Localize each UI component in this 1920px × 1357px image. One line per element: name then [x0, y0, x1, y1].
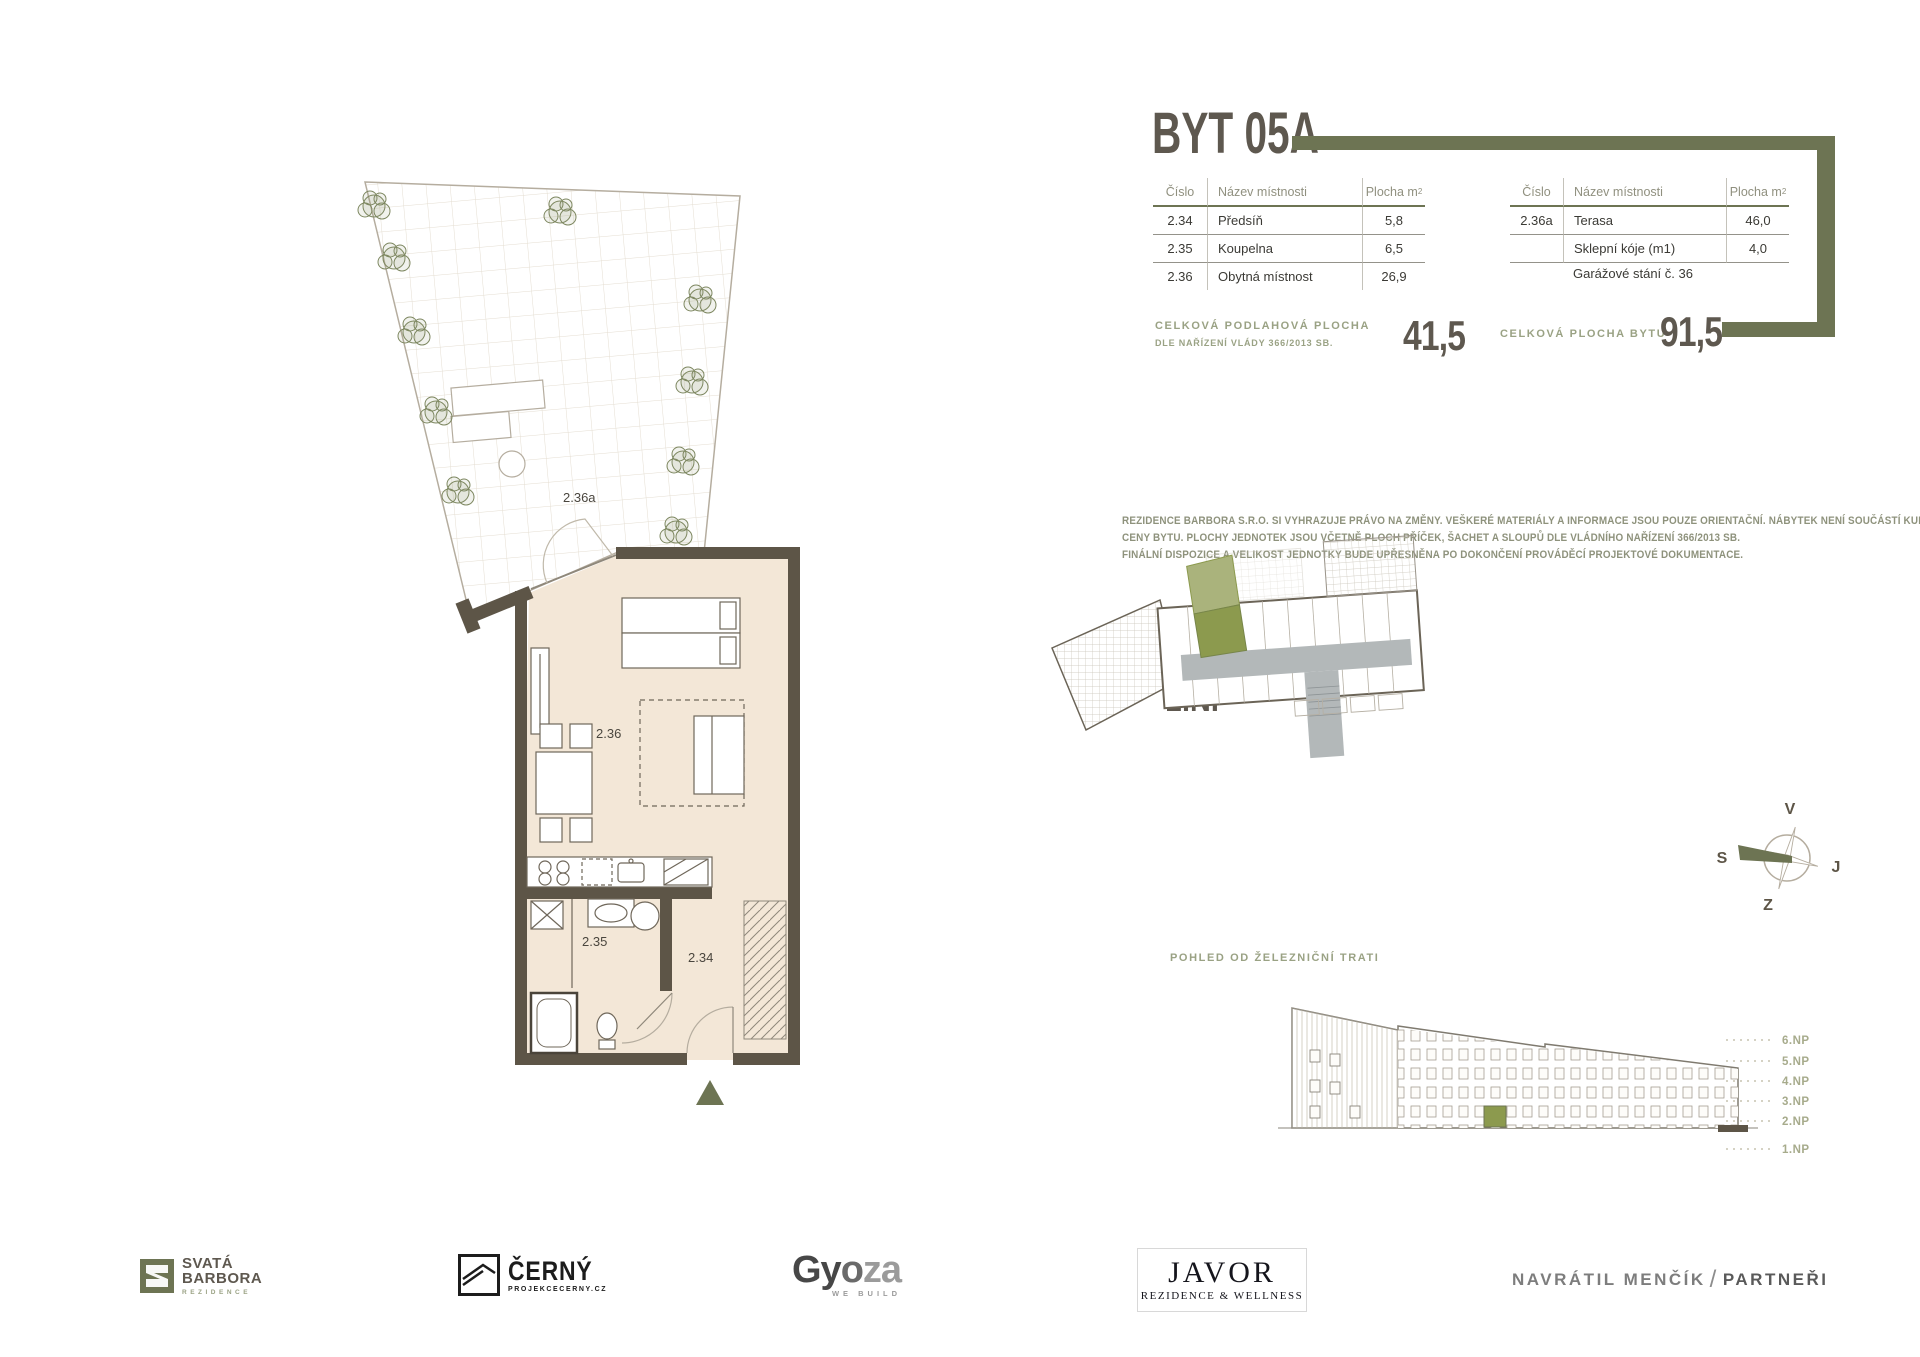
table-cell: Koupelna [1207, 235, 1363, 263]
entrance-arrow [696, 1080, 724, 1105]
room-label-living: 2.36 [596, 726, 621, 741]
navratil-slash: / [1706, 1266, 1723, 1293]
level-label-3np: 3.NP [1782, 1096, 1810, 1108]
svata-line1: SVATÁ [182, 1256, 262, 1271]
col-header-area: Plocha m2 [1363, 178, 1425, 207]
javor-name: JAVOR [1168, 1258, 1276, 1288]
window-grid [1398, 1028, 1738, 1128]
accent-bar-bottom [1722, 322, 1835, 337]
cerny-sub: PROJEKCECERNY.CZ [508, 1286, 608, 1293]
table-cell: 2.34 [1153, 207, 1207, 235]
cerny-name: ČERNÝ [508, 1258, 593, 1284]
area-unit-sup: 2 [1418, 187, 1422, 196]
table-cell: 2.35 [1153, 235, 1207, 263]
col-header-number: Číslo [1510, 178, 1563, 207]
total-floor-value: 41,5 [1403, 312, 1465, 360]
table-cell: Sklepní kóje (m1) [1563, 235, 1727, 263]
total-flat-label: CELKOVÁ PLOCHA BYTU [1500, 328, 1666, 340]
sofa [694, 716, 744, 794]
logo-gyoza: Gyoza WE BUILD [792, 1252, 901, 1298]
compass: S V J Z [1717, 801, 1841, 914]
table-cell: 6,5 [1363, 235, 1425, 263]
table-cell: 2.36a [1510, 207, 1563, 235]
total-floor-label: CELKOVÁ PODLAHOVÁ PLOCHA [1155, 320, 1370, 332]
compass-letter-z: Z [1763, 897, 1773, 914]
room-table-right: Číslo Název místnosti Plocha m2 2.36a Te… [1510, 178, 1789, 263]
svata-barbora-icon [140, 1259, 174, 1293]
area-unit-sup: 2 [1782, 187, 1786, 196]
total-flat-value: 91,5 [1660, 308, 1722, 356]
logo-svata-barbora: SVATÁ BARBORA REZIDENCE [140, 1256, 262, 1296]
dining-table [536, 752, 592, 814]
navratil-partner: PARTNEŘI [1723, 1270, 1829, 1289]
room-table-left: Číslo Název místnosti Plocha m2 2.34 Pře… [1153, 178, 1425, 290]
gyoza-o: o [841, 1249, 863, 1291]
room-label-bath: 2.35 [582, 934, 607, 949]
javor-sub: REZIDENCE & WELLNESS [1141, 1290, 1303, 1302]
col-header-name: Název místnosti [1563, 178, 1727, 207]
elevation-drawing: 6.NP 5.NP 4.NP 3.NP 2.NP 1.NP [1260, 985, 1860, 1175]
accent-bar-right [1817, 136, 1835, 337]
table-cell: 4,0 [1727, 235, 1789, 263]
gyoza-gy: Gy [792, 1249, 841, 1291]
table-cell: Terasa [1563, 207, 1727, 235]
kitchen-counter [527, 857, 712, 887]
table-cell: 5,8 [1363, 207, 1425, 235]
room-label-terrace: 2.36a [563, 490, 596, 505]
garage-note: Garážové stání č. 36 [1573, 266, 1693, 281]
level-label-4np: 4.NP [1782, 1076, 1810, 1088]
col-header-name: Název místnosti [1207, 178, 1363, 207]
col-header-number: Číslo [1153, 178, 1207, 207]
gyoza-name: Gyoza [792, 1252, 901, 1288]
cerny-icon [458, 1254, 500, 1296]
page-title: BYT 05A [1152, 100, 1319, 167]
table-cell: 26,9 [1363, 263, 1425, 290]
level-label-2np: 2.NP [1782, 1116, 1810, 1128]
unit-highlight-elevation [1484, 1106, 1506, 1127]
logo-cerny: ČERNÝ PROJEKCECERNY.CZ [458, 1254, 608, 1296]
logo-navratil: NAVRÁTIL MENČÍK/PARTNEŘI [1512, 1266, 1828, 1294]
logo-javor: JAVOR REZIDENCE & WELLNESS [1137, 1248, 1307, 1312]
elevation-label: POHLED OD ŽELEZNIČNÍ TRATI [1170, 952, 1379, 964]
table-cell [1510, 235, 1563, 263]
stove-burner [539, 861, 551, 873]
building-footprint [1154, 535, 1428, 768]
area-unit: Plocha m [1366, 185, 1418, 199]
apartment-floor-plan: 2.36a [300, 150, 840, 1160]
compass-letter-s: S [1717, 850, 1728, 867]
level-label-6np: 6.NP [1782, 1035, 1810, 1047]
level-label-5np: 5.NP [1782, 1056, 1810, 1068]
building-upper-block [1323, 535, 1417, 596]
site-plan-drawing: S V J Z [1040, 520, 1880, 940]
shower [631, 902, 659, 930]
compass-letter-j: J [1832, 859, 1841, 876]
unit-terrace-highlight [1186, 555, 1240, 614]
table-cell: 46,0 [1727, 207, 1789, 235]
svata-barbora-name: SVATÁ BARBORA [182, 1256, 262, 1286]
brochure-page: 2.36a [0, 0, 1920, 1357]
accent-bar-top [1292, 136, 1835, 150]
terrace-slab-mark [1718, 1125, 1748, 1132]
unit-highlight [1194, 604, 1247, 657]
kitchen-sink [618, 863, 644, 882]
room-label-hall: 2.34 [688, 950, 713, 965]
total-floor-sublabel: DLE NAŘÍZENÍ VLÁDY 366/2013 SB. [1155, 338, 1333, 348]
table-cell: Předsíň [1207, 207, 1363, 235]
table-cell: 2.36 [1153, 263, 1207, 290]
storage-hatch [744, 901, 786, 1039]
compass-letter-v: V [1785, 801, 1796, 818]
gyoza-za: za [863, 1249, 901, 1291]
table-cell: Obytná místnost [1207, 263, 1363, 290]
svata-line2: BARBORA [182, 1271, 262, 1286]
col-header-area: Plocha m2 [1727, 178, 1789, 207]
level-label-1np: 1.NP [1782, 1144, 1810, 1156]
toilet [597, 1013, 617, 1039]
navratil-name: NAVRÁTIL MENČÍK [1512, 1270, 1706, 1289]
svata-barbora-sub: REZIDENCE [182, 1289, 262, 1296]
area-unit: Plocha m [1730, 185, 1782, 199]
